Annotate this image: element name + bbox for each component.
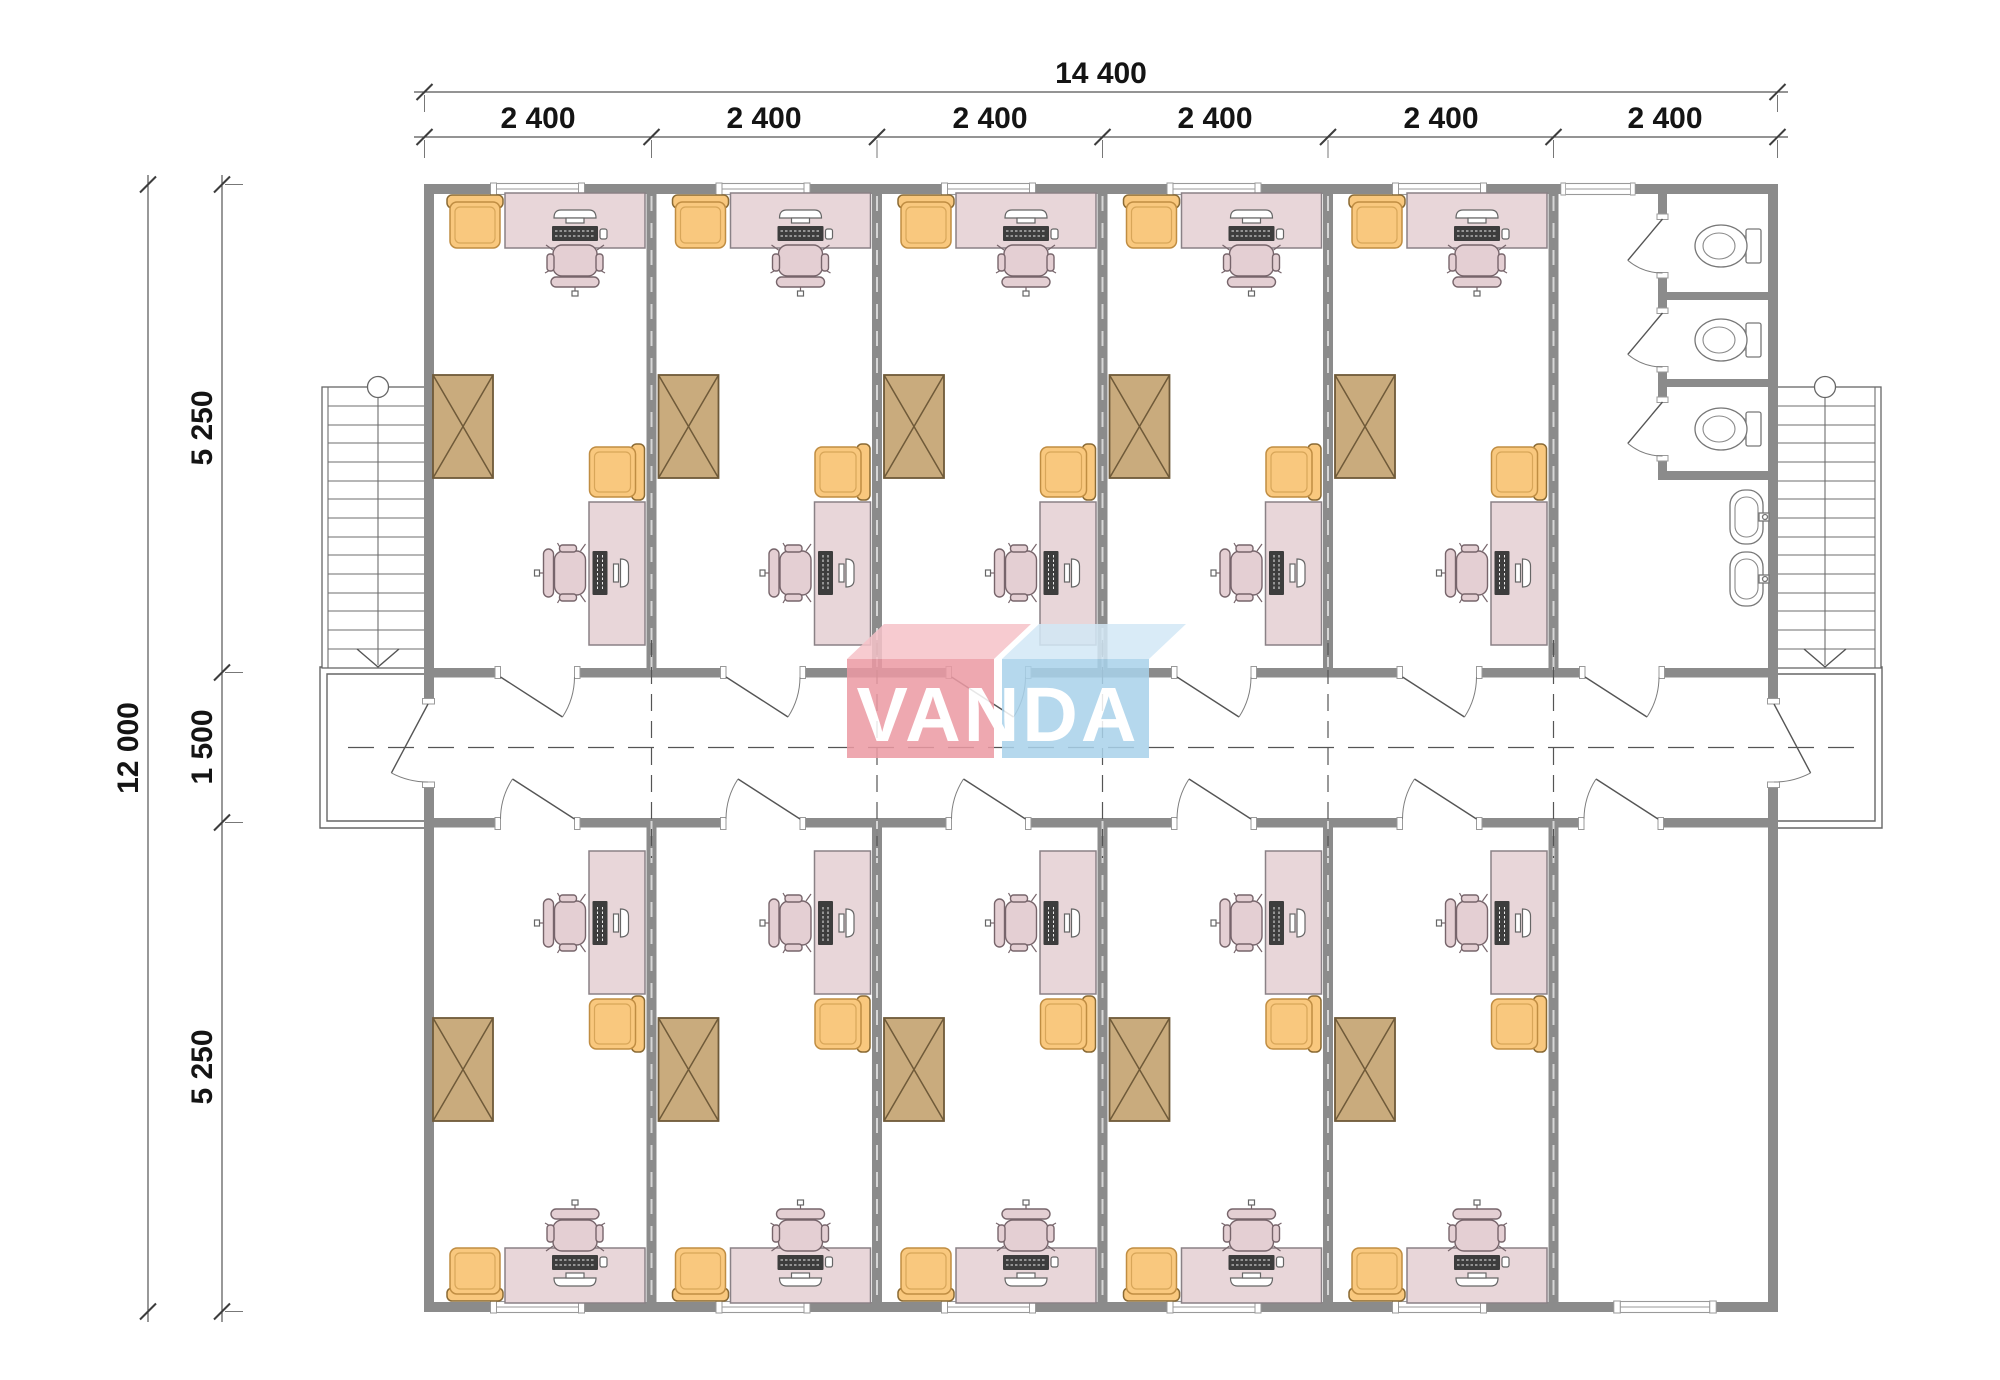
dim-label-left-bottom: 5 250 [186, 1029, 219, 1104]
dimension-top-total: 14 400 [414, 57, 1788, 112]
dim-label-seg-5: 2 400 [1403, 102, 1478, 135]
dimension-left-segments: 5 250 1 500 5 250 [186, 175, 243, 1322]
staircase-left [322, 377, 429, 669]
staircase-right [1774, 377, 1881, 669]
logo-watermark: VANDA [847, 624, 1186, 758]
dim-label-seg-4: 2 400 [1177, 102, 1252, 135]
exterior-door-left [391, 699, 434, 788]
dim-label-left-total: 12 000 [112, 702, 145, 794]
floor-plan-drawing: 14 400 2 400 2 400 2 400 2 400 2 400 2 4… [0, 0, 2000, 1380]
dimension-left-total: 12 000 [112, 175, 156, 1322]
dimension-top-segments: 2 400 2 400 2 400 2 400 2 400 2 400 [414, 102, 1788, 158]
dim-label-seg-1: 2 400 [500, 102, 575, 135]
dim-label-seg-3: 2 400 [952, 102, 1027, 135]
exterior-door-right [1768, 699, 1811, 788]
dim-label-seg-6: 2 400 [1627, 102, 1702, 135]
dim-label-left-middle: 1 500 [186, 709, 219, 784]
washroom-fixtures [1695, 225, 1769, 606]
dim-label-top-total: 14 400 [1055, 57, 1147, 90]
dim-label-left-top: 5 250 [186, 390, 219, 465]
dim-label-seg-2: 2 400 [726, 102, 801, 135]
floor-plan-page: 14 400 2 400 2 400 2 400 2 400 2 400 2 4… [0, 0, 2000, 1380]
logo-text: VANDA [856, 672, 1139, 758]
